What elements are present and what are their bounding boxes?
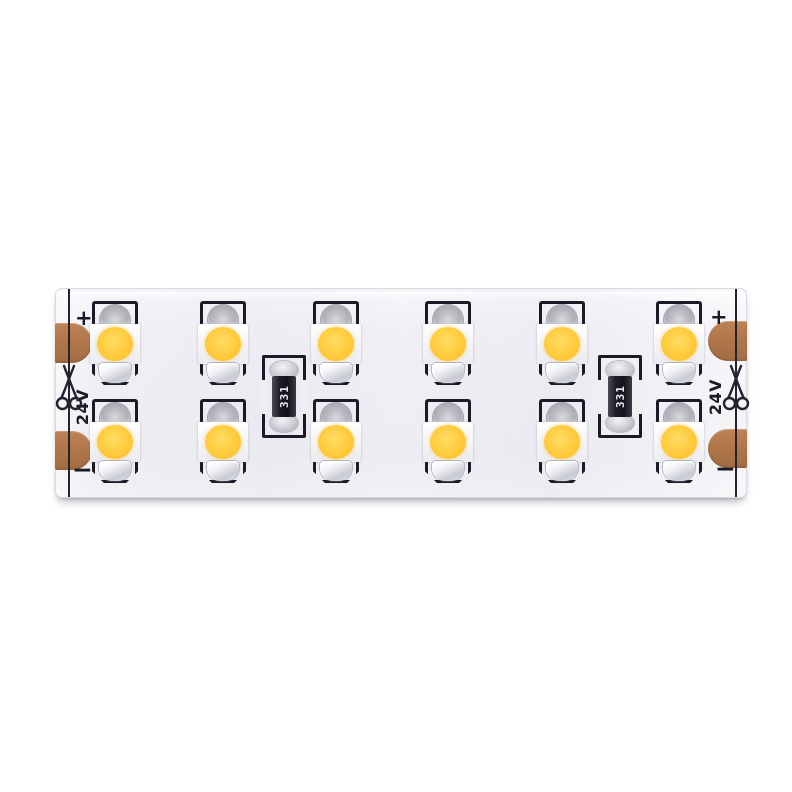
led-bottom-solder-joint [663,363,695,383]
led-package [311,422,361,462]
resistor-code-label: 331 [614,385,627,408]
led-module [313,399,359,483]
led-bottom-solder-joint [207,363,239,383]
led-phosphor-dot [318,425,354,459]
led-phosphor-dot [97,327,133,361]
led-module [313,301,359,385]
led-phosphor-dot [661,327,697,361]
led-module [200,399,246,483]
led-bottom-solder-joint [320,363,352,383]
led-package [90,422,140,462]
led-module [425,399,471,483]
led-package [90,324,140,364]
led-bottom-solder-joint [663,461,695,481]
resistor: 331 [598,355,642,438]
led-phosphor-dot [430,425,466,459]
led-bottom-solder-joint [99,363,131,383]
scissors-icon-right [722,363,750,419]
led-package [537,324,587,364]
led-module [539,301,585,385]
led-package [198,422,248,462]
led-bottom-solder-joint [432,461,464,481]
resistor-body: 331 [608,376,632,417]
led-bottom-solder-joint [320,461,352,481]
resistor-body: 331 [272,376,296,417]
led-phosphor-dot [544,327,580,361]
led-phosphor-dot [205,327,241,361]
led-module [200,301,246,385]
led-bottom-solder-joint [546,363,578,383]
polarity-plus-label-right: + [710,307,728,328]
resistor: 331 [262,355,306,438]
led-bottom-solder-joint [546,461,578,481]
led-phosphor-dot [544,425,580,459]
led-phosphor-dot [205,425,241,459]
led-package [311,324,361,364]
polarity-minus-label-right: − [715,456,736,481]
led-package [198,324,248,364]
led-bottom-solder-joint [99,461,131,481]
led-strip-pcb: + − + − 24V 24V [55,288,747,498]
led-module [425,301,471,385]
led-bottom-solder-joint [207,461,239,481]
led-phosphor-dot [661,425,697,459]
led-package [423,324,473,364]
product-photo: + − + − 24V 24V [0,0,792,792]
resistor-code-label: 331 [278,385,291,408]
led-module [92,301,138,385]
led-phosphor-dot [318,327,354,361]
led-phosphor-dot [97,425,133,459]
led-phosphor-dot [430,327,466,361]
led-package [654,422,704,462]
led-module [92,399,138,483]
led-package [537,422,587,462]
scissors-icon-left [55,363,83,419]
led-module [656,399,702,483]
led-module [656,301,702,385]
led-package [654,324,704,364]
led-package [423,422,473,462]
led-bottom-solder-joint [432,363,464,383]
led-module [539,399,585,483]
